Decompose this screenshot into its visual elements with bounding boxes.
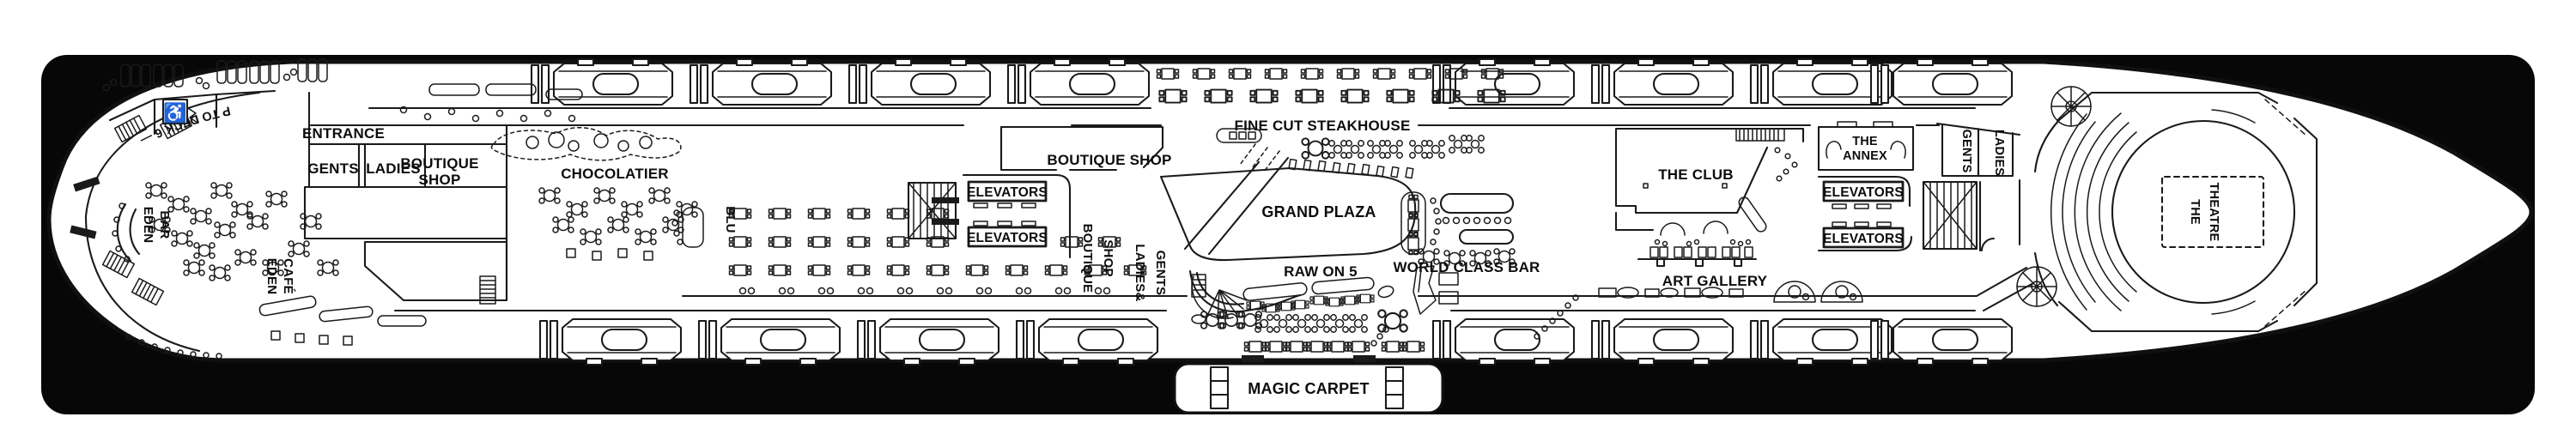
- wheelchair-access: ♿: [163, 100, 187, 124]
- blu-label: BLU: [723, 206, 738, 233]
- deck-plan-svg: RAMP UP TO DECK 6 —: [0, 0, 2576, 429]
- elevators-label-2: ELEVATORS: [967, 231, 1048, 245]
- ladies-gents-vert-label-2: GENTS: [1153, 251, 1168, 296]
- svg-text:BAR: BAR: [157, 210, 172, 239]
- svg-text:CAFÉ: CAFÉ: [281, 258, 295, 294]
- gents-aft-label: GENTS: [307, 160, 359, 177]
- boutique-aft-label-1: BOUTIQUE: [400, 155, 478, 172]
- ladies-gents-vert-label-1: LADIES&: [1133, 244, 1147, 301]
- art-gallery-label: ART GALLERY: [1662, 273, 1768, 289]
- elevators-label-1: ELEVATORS: [967, 185, 1048, 200]
- chocolatier-label: CHOCOLATIER: [561, 166, 669, 182]
- boutique-mid-label: BOUTIQUE SHOP: [1047, 152, 1171, 168]
- boutique-vert-label-2: SHOP: [1101, 239, 1115, 276]
- ladies-fwd-label: LADIES: [1992, 130, 2006, 177]
- boutique-aft-label-2: SHOP: [419, 172, 461, 188]
- world-class-bar-label: WORLD CLASS BAR: [1393, 259, 1540, 275]
- entrance-label: ENTRANCE: [302, 125, 385, 142]
- spiral-stairs-icon: [2017, 267, 2057, 306]
- svg-text:EDEN: EDEN: [141, 207, 155, 243]
- elevators-label-3: ELEVATORS: [1823, 185, 1904, 200]
- annex-label-1: THE: [1852, 135, 1878, 148]
- magic-carpet-label: MAGIC CARPET: [1248, 380, 1369, 397]
- theatre-label-2: THEATRE: [2207, 183, 2221, 242]
- svg-text:EDEN: EDEN: [264, 258, 279, 294]
- spiral-stairs-icon: [2051, 87, 2091, 126]
- the-club-label: THE CLUB: [1658, 166, 1734, 183]
- wheelchair-icon: ♿: [163, 102, 187, 124]
- raw-on-5-label: RAW ON 5: [1284, 263, 1358, 280]
- annex-label-2: ANNEX: [1843, 149, 1887, 163]
- deck-plan-page: RAMP UP TO DECK 6 —: [0, 0, 2576, 429]
- magic-carpet: MAGIC CARPET: [1175, 355, 1443, 413]
- theatre-label-1: THE: [2188, 199, 2202, 225]
- grand-plaza-label: GRAND PLAZA: [1261, 203, 1376, 221]
- gents-fwd-label: GENTS: [1959, 130, 1973, 173]
- elevators-label-4: ELEVATORS: [1823, 232, 1904, 246]
- boutique-vert-label-1: BOUTIQUE: [1080, 224, 1095, 293]
